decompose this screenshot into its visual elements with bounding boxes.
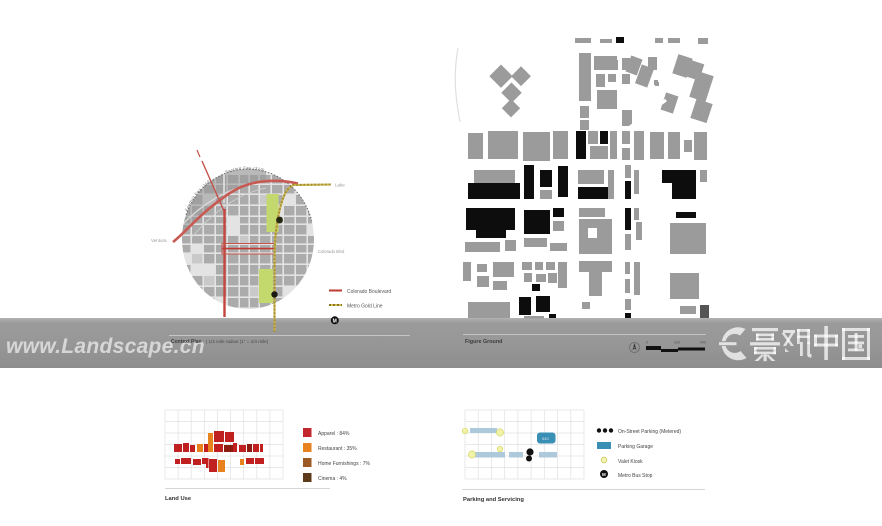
svg-text:Colorado Boulevard: Colorado Boulevard bbox=[347, 289, 391, 295]
svg-text:540: 540 bbox=[542, 436, 549, 441]
svg-text:Restaurant : 35%: Restaurant : 35% bbox=[318, 446, 357, 452]
svg-text:M: M bbox=[602, 472, 606, 477]
svg-text:Ventura: Ventura bbox=[151, 238, 167, 243]
svg-text:0: 0 bbox=[646, 341, 648, 345]
svg-text:M: M bbox=[333, 318, 337, 324]
svg-text:Cinema : 4%: Cinema : 4% bbox=[318, 476, 347, 482]
svg-text:Figure Ground: Figure Ground bbox=[465, 339, 502, 345]
svg-text:Parking and Servicing: Parking and Servicing bbox=[463, 497, 524, 503]
svg-text:Context Plan: Context Plan bbox=[171, 339, 202, 345]
svg-text:Lake: Lake bbox=[335, 183, 345, 188]
svg-text:200: 200 bbox=[674, 341, 680, 345]
svg-text:Metro Gold Line: Metro Gold Line bbox=[347, 304, 383, 310]
svg-text:Valet Kiosk: Valet Kiosk bbox=[618, 459, 643, 465]
svg-text:| 1/4 mile radius (1" = 1/4 mi: | 1/4 mile radius (1" = 1/4 mile) bbox=[206, 339, 269, 344]
svg-text:Metro Bus Stop: Metro Bus Stop bbox=[618, 473, 653, 479]
svg-text:Land Use: Land Use bbox=[165, 496, 192, 502]
svg-text:400: 400 bbox=[700, 341, 706, 345]
svg-text:Home Furnishings : 7%: Home Furnishings : 7% bbox=[318, 461, 371, 467]
svg-text:Apparel : 84%: Apparel : 84% bbox=[318, 431, 350, 437]
svg-text:Colorado Blvd: Colorado Blvd bbox=[318, 249, 345, 254]
svg-text:Parking Garage: Parking Garage bbox=[618, 444, 653, 450]
svg-text:On-Street Parking (Metered): On-Street Parking (Metered) bbox=[618, 429, 681, 435]
